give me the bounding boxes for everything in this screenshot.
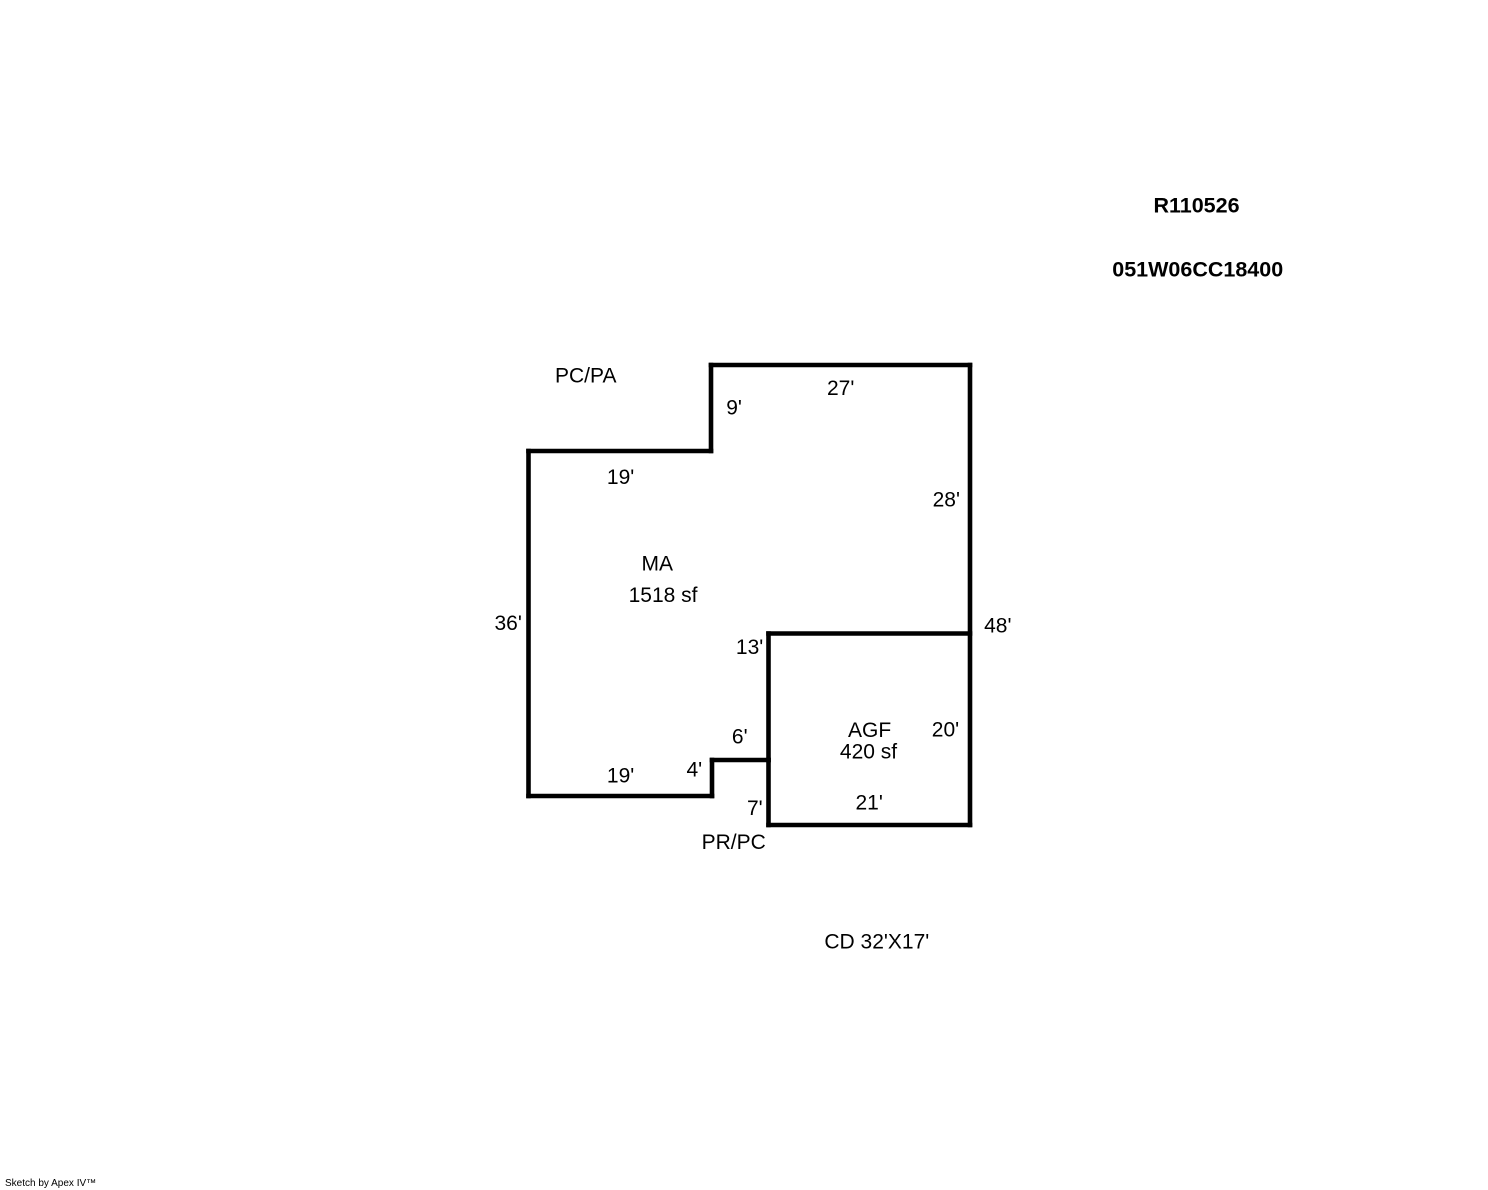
- svg-text:7': 7': [747, 797, 763, 820]
- svg-text:AGF: AGF: [848, 719, 891, 742]
- svg-text:R110526: R110526: [1153, 193, 1239, 217]
- svg-text:21': 21': [856, 792, 883, 815]
- svg-text:Sketch by Apex IV™: Sketch by Apex IV™: [5, 1178, 96, 1189]
- svg-text:19': 19': [607, 466, 634, 489]
- svg-text:051W06CC18400: 051W06CC18400: [1112, 258, 1283, 282]
- svg-text:4': 4': [687, 759, 703, 782]
- svg-text:PR/PC: PR/PC: [702, 831, 766, 854]
- svg-text:48': 48': [984, 615, 1011, 638]
- svg-text:13': 13': [736, 636, 763, 659]
- svg-text:19': 19': [607, 765, 634, 788]
- svg-text:CD 32'X17': CD 32'X17': [824, 930, 929, 953]
- svg-text:MA: MA: [642, 553, 674, 576]
- svg-text:20': 20': [932, 719, 959, 742]
- svg-text:28': 28': [933, 488, 960, 511]
- svg-text:9': 9': [726, 396, 742, 419]
- svg-text:PC/PA: PC/PA: [555, 364, 616, 387]
- svg-text:6': 6': [732, 725, 748, 748]
- svg-text:27': 27': [827, 377, 854, 400]
- svg-text:1518 sf: 1518 sf: [629, 584, 698, 607]
- svg-text:36': 36': [495, 612, 522, 635]
- svg-text:420 sf: 420 sf: [840, 741, 897, 764]
